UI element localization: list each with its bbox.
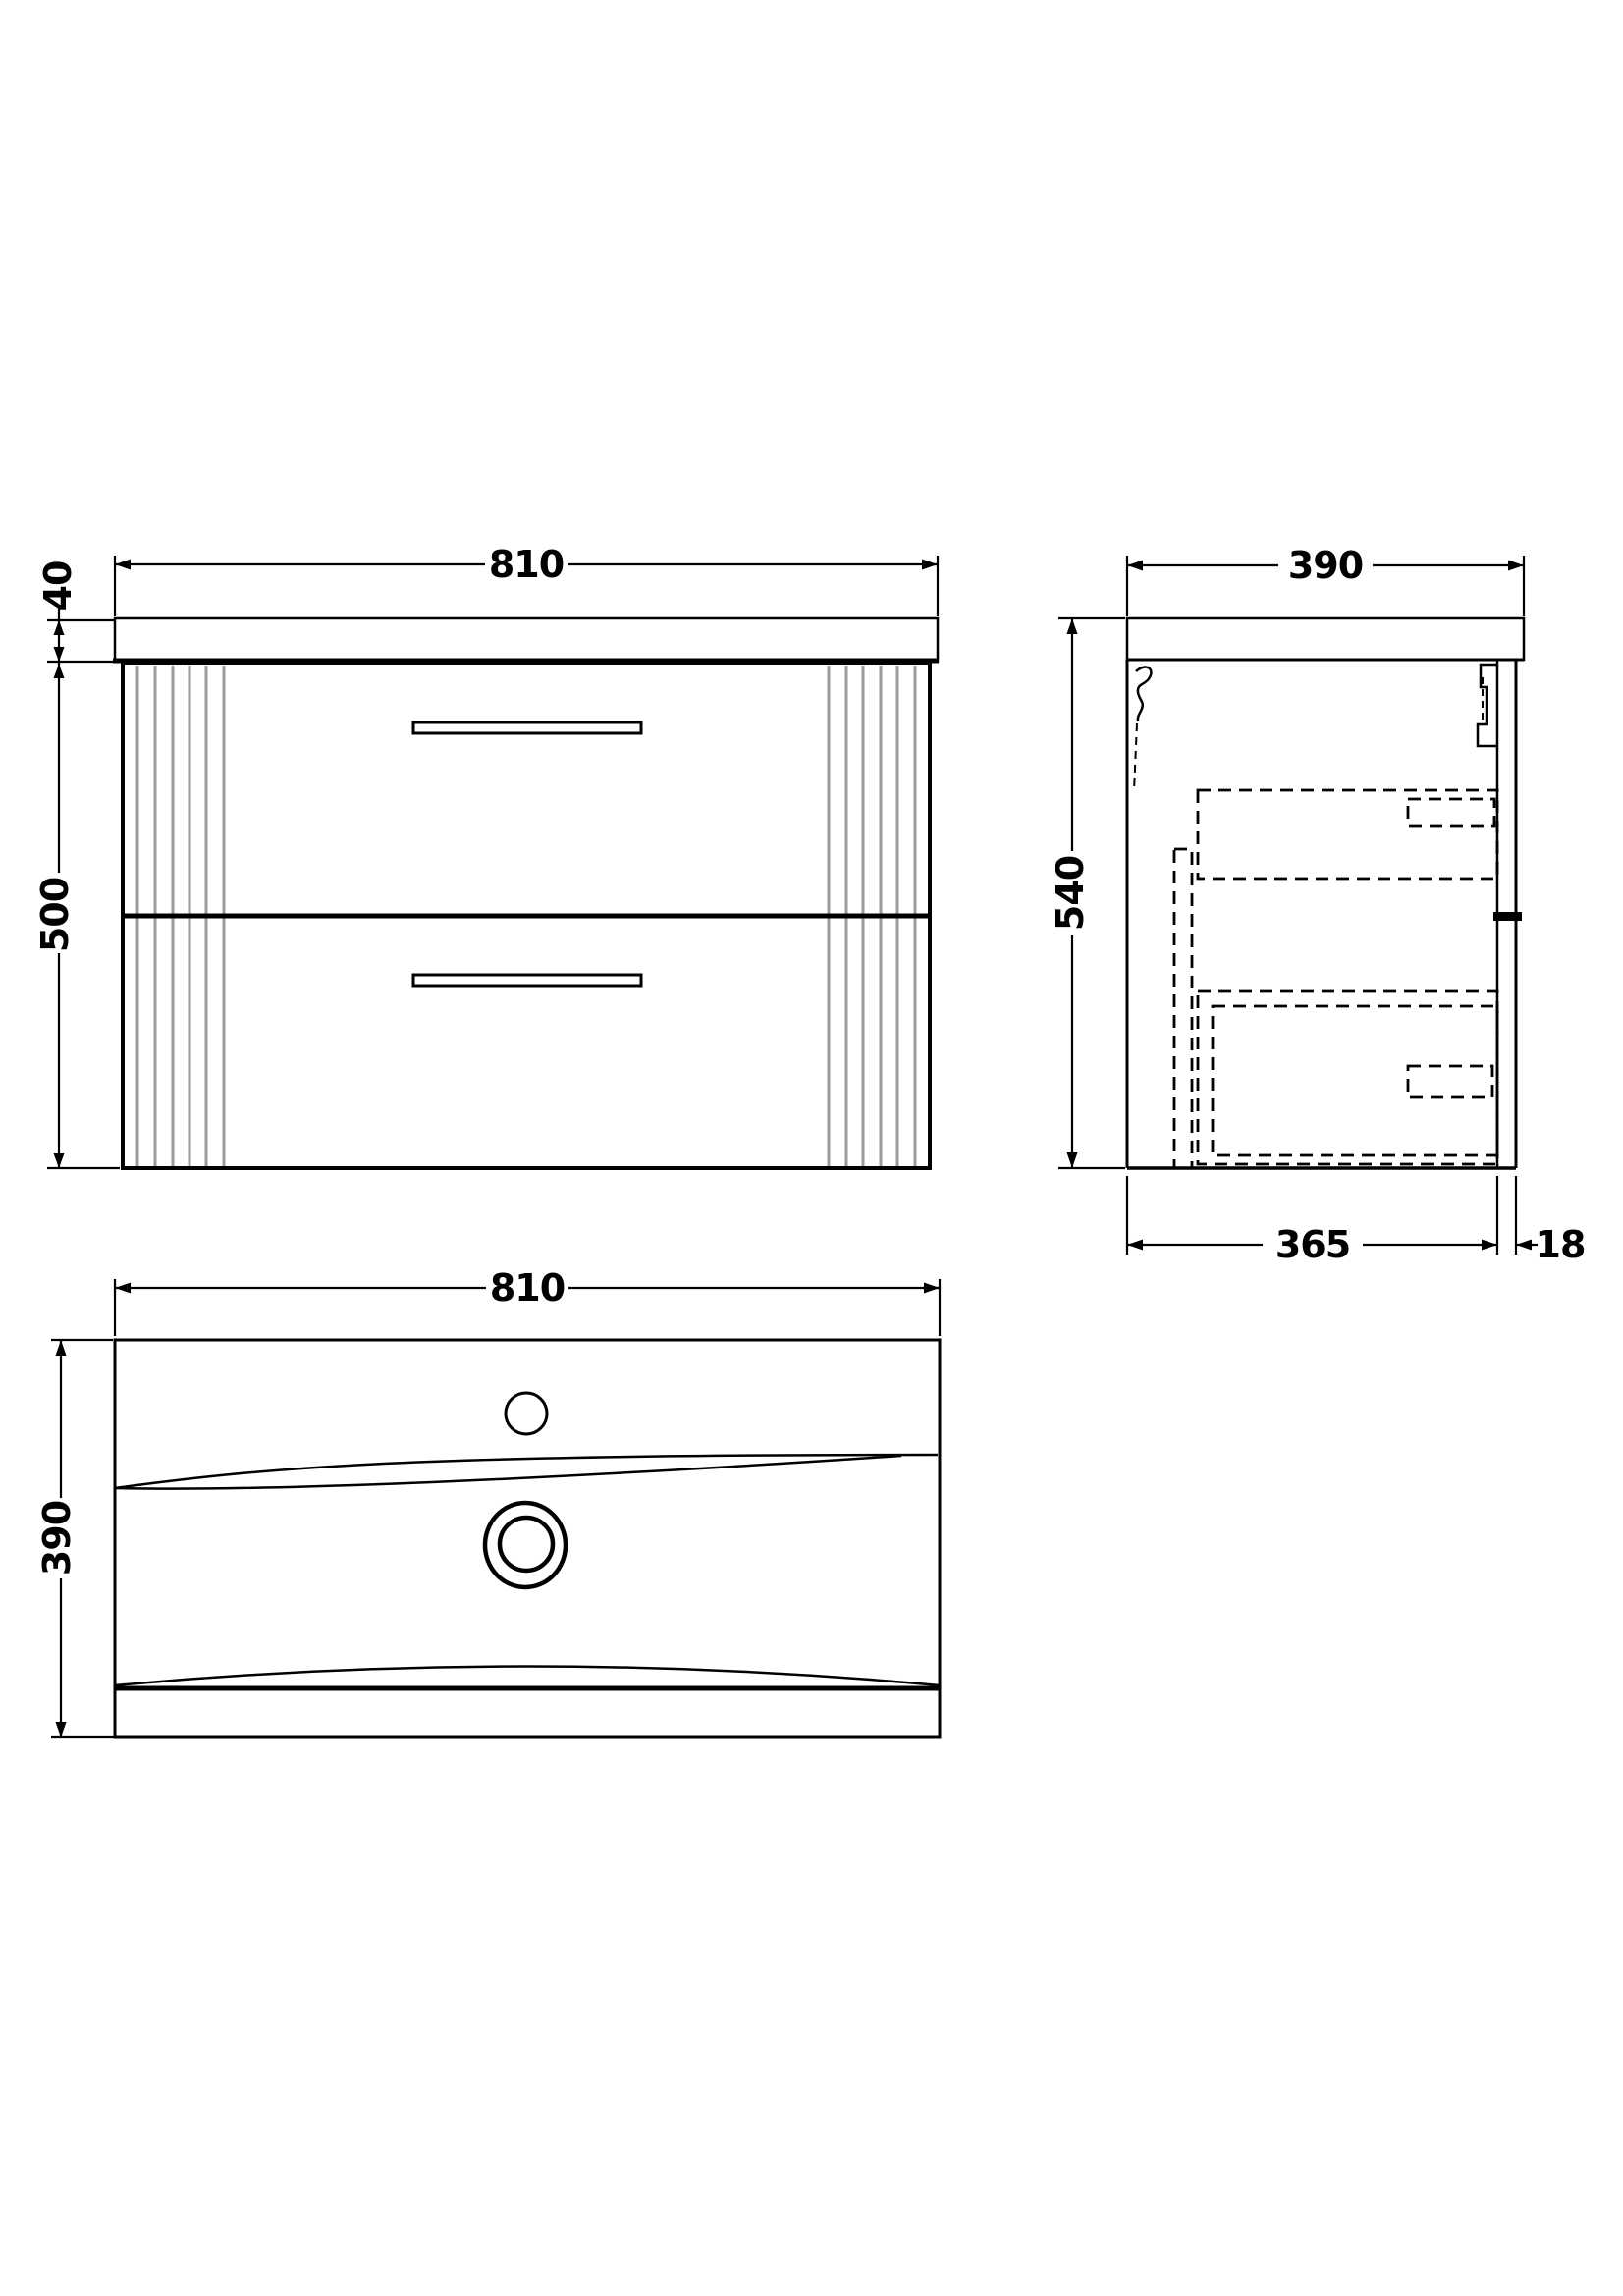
dimension-label-side-front-panel: 18 <box>1536 1223 1586 1266</box>
dimension-label-front-worktop: 40 <box>36 561 80 612</box>
dimension-label-front-width: 810 <box>489 543 564 586</box>
dimension-label-plan-depth: 390 <box>35 1501 79 1575</box>
dimension-label-side-depth: 390 <box>1288 544 1363 587</box>
sheet-background <box>0 0 1623 2296</box>
plan-view <box>115 1340 940 1737</box>
drawer-handle-top <box>413 722 641 733</box>
drawing-sheet: 810 40 500 <box>0 0 1623 2296</box>
dimension-label-side-cabinet-depth: 365 <box>1275 1223 1350 1266</box>
basin-outline <box>115 1340 940 1737</box>
vanity-technical-drawing: 810 40 500 <box>0 0 1623 2296</box>
dimension-label-plan-width: 810 <box>490 1266 565 1309</box>
worktop-front <box>115 618 938 661</box>
drawer-handle-bottom <box>413 975 641 986</box>
worktop-side <box>1127 618 1524 660</box>
dimension-label-side-height: 540 <box>1049 856 1092 931</box>
drawer-gap-notch <box>1493 912 1522 921</box>
dimension-label-front-cabinet-height: 500 <box>33 878 77 952</box>
